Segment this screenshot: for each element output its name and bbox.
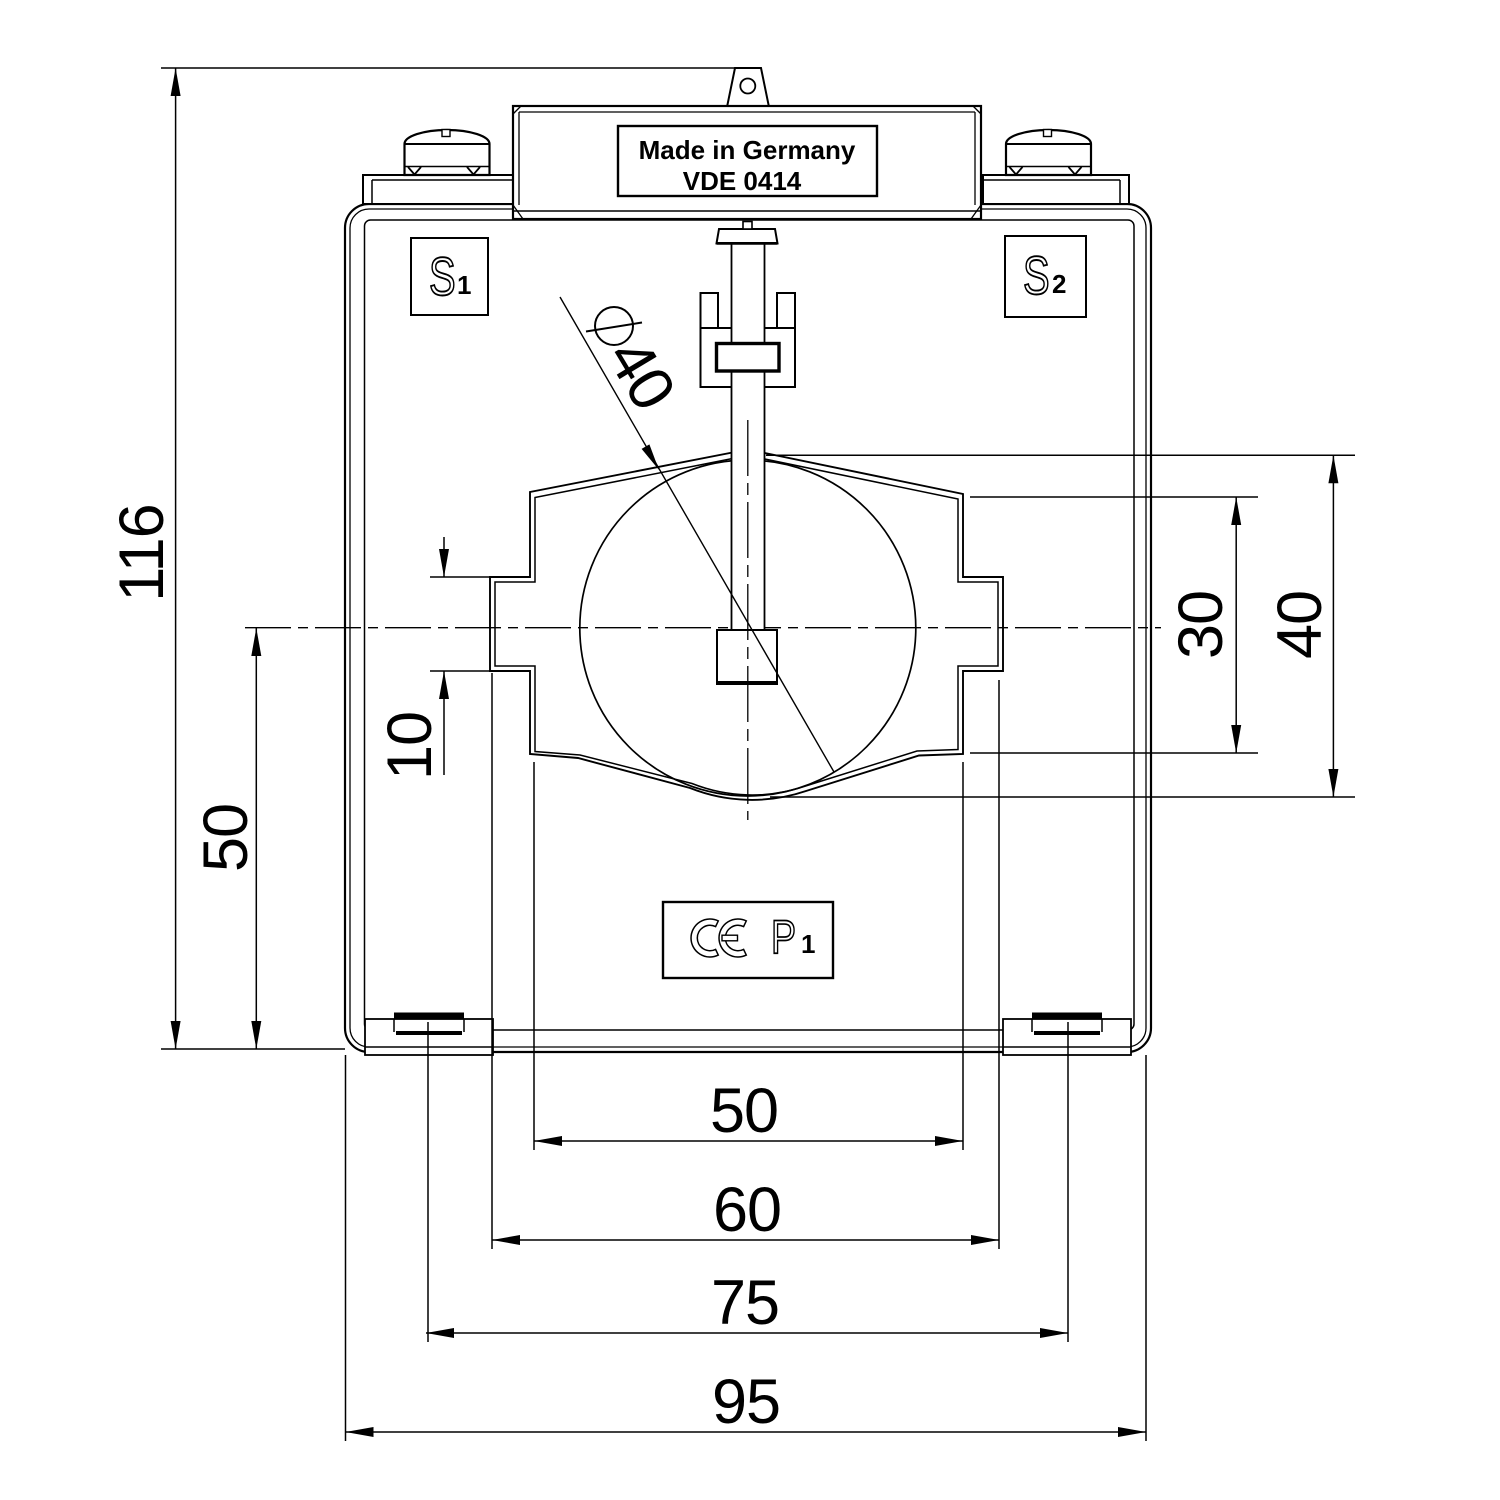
svg-text:50: 50 — [710, 1076, 778, 1146]
svg-text:P: P — [771, 911, 796, 964]
svg-text:S: S — [1023, 246, 1050, 306]
svg-text:10: 10 — [375, 712, 445, 780]
svg-text:Made in Germany: Made in Germany — [639, 135, 856, 165]
svg-text:50: 50 — [191, 804, 261, 872]
svg-text:2: 2 — [1052, 269, 1066, 299]
svg-text:40: 40 — [1265, 591, 1335, 659]
svg-text:S: S — [429, 247, 456, 307]
svg-text:60: 60 — [713, 1175, 781, 1245]
svg-text:1: 1 — [457, 270, 471, 300]
svg-text:95: 95 — [712, 1367, 780, 1437]
svg-text:75: 75 — [711, 1268, 779, 1338]
svg-text:1: 1 — [801, 929, 815, 959]
svg-text:VDE 0414: VDE 0414 — [683, 166, 802, 196]
svg-text:30: 30 — [1166, 591, 1236, 659]
svg-text:116: 116 — [107, 504, 177, 601]
